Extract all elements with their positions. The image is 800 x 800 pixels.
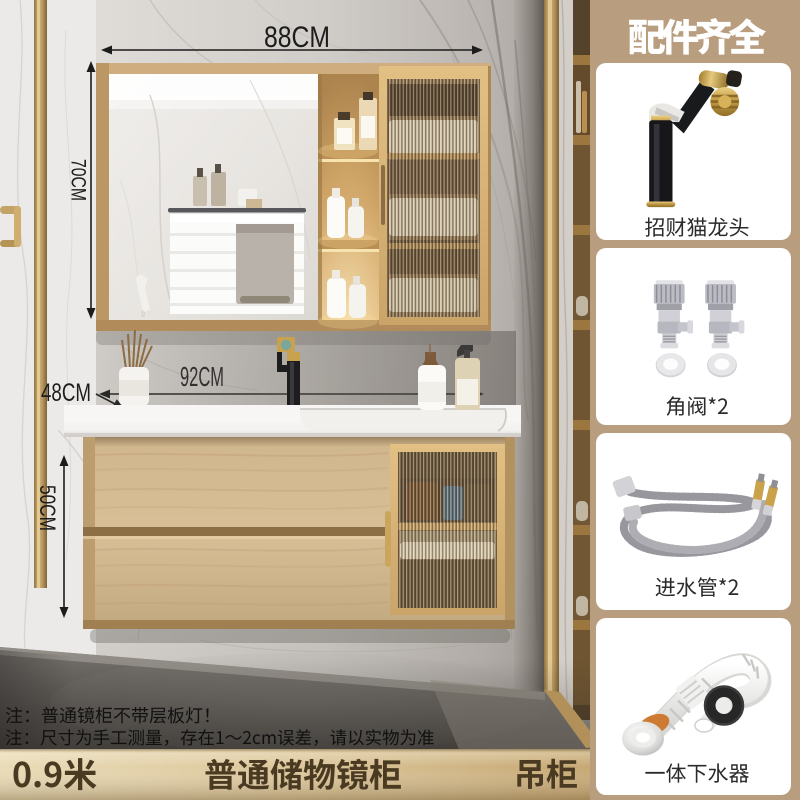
svg-text:48CM: 48CM [41,379,91,407]
svg-text:88CM: 88CM [264,21,330,54]
svg-text:70CM: 70CM [67,159,90,201]
svg-text:50CM: 50CM [35,485,60,531]
